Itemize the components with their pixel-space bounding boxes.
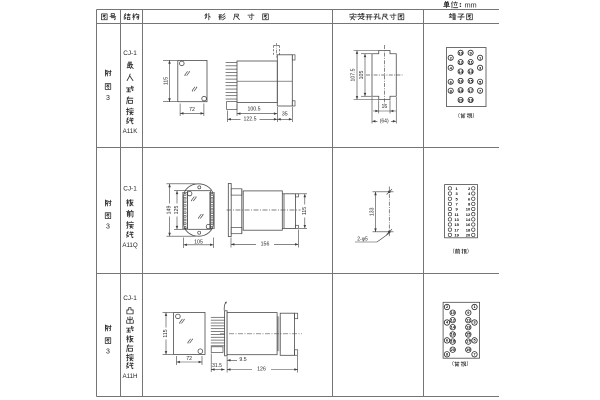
svg-text:16: 16 — [458, 79, 463, 84]
svg-text:14: 14 — [458, 69, 463, 74]
svg-text:156: 156 — [261, 241, 270, 247]
svg-text:18: 18 — [451, 340, 455, 344]
svg-text:(64): (64) — [380, 118, 389, 124]
svg-text:20: 20 — [451, 348, 455, 352]
svg-text:7: 7 — [473, 352, 475, 356]
svg-text:CJ-1: CJ-1 — [123, 295, 137, 302]
svg-text:(: ( — [453, 249, 455, 255]
svg-text:115: 115 — [163, 329, 169, 337]
svg-text:10: 10 — [458, 50, 463, 55]
svg-text:1: 1 — [473, 305, 475, 309]
svg-text:105: 105 — [359, 71, 365, 80]
svg-text:19: 19 — [454, 232, 459, 237]
svg-text:149: 149 — [167, 206, 173, 215]
svg-text:8: 8 — [446, 352, 448, 356]
svg-text:20: 20 — [458, 98, 463, 103]
svg-text:18: 18 — [458, 88, 463, 93]
svg-text:19: 19 — [466, 348, 470, 352]
svg-text:6: 6 — [446, 339, 448, 343]
svg-text:3: 3 — [106, 95, 110, 102]
svg-text:122.5: 122.5 — [244, 116, 257, 122]
svg-text:15: 15 — [466, 333, 470, 337]
svg-text:16: 16 — [382, 104, 388, 110]
svg-text:mm: mm — [465, 1, 477, 10]
svg-text:9: 9 — [467, 311, 469, 315]
svg-text:): ) — [467, 249, 469, 255]
svg-text:4: 4 — [446, 321, 449, 325]
svg-text:3: 3 — [106, 224, 110, 231]
svg-text:72: 72 — [186, 356, 192, 362]
svg-text:A11H: A11H — [122, 373, 137, 380]
svg-text:): ) — [473, 113, 475, 119]
svg-text:17: 17 — [468, 88, 473, 93]
svg-text:19: 19 — [468, 98, 473, 103]
svg-text:13: 13 — [468, 69, 473, 74]
svg-text:11: 11 — [466, 318, 470, 322]
svg-text:72: 72 — [189, 107, 195, 113]
svg-text:A11K: A11K — [123, 128, 139, 135]
svg-text:A11Q: A11Q — [122, 242, 138, 249]
svg-text:100.5: 100.5 — [248, 107, 261, 113]
svg-text:16: 16 — [451, 333, 455, 337]
svg-text:13: 13 — [466, 325, 470, 329]
svg-text:12: 12 — [458, 60, 463, 65]
svg-text:(: ( — [458, 113, 460, 119]
svg-text:115: 115 — [163, 77, 169, 85]
svg-text:3: 3 — [473, 321, 475, 325]
svg-text:12: 12 — [451, 318, 455, 322]
svg-text:10: 10 — [451, 311, 455, 315]
svg-text:126: 126 — [257, 366, 266, 372]
svg-text:CJ-1: CJ-1 — [123, 50, 137, 57]
svg-text:2: 2 — [446, 305, 448, 309]
svg-text:3: 3 — [106, 349, 110, 356]
svg-text:17: 17 — [466, 340, 470, 344]
svg-text:2-φ5: 2-φ5 — [357, 236, 368, 242]
svg-text:35: 35 — [282, 111, 288, 117]
svg-text:125: 125 — [174, 206, 180, 215]
svg-text:115: 115 — [302, 207, 308, 215]
svg-text:105: 105 — [194, 239, 203, 245]
svg-text:(: ( — [452, 361, 454, 367]
svg-text:133: 133 — [369, 207, 375, 216]
svg-text:107.5: 107.5 — [351, 68, 357, 81]
svg-text:9.5: 9.5 — [239, 357, 246, 363]
svg-text:31.5: 31.5 — [212, 363, 222, 369]
svg-text:CJ-1: CJ-1 — [123, 186, 137, 193]
svg-text:5: 5 — [473, 339, 475, 343]
svg-text:20: 20 — [466, 232, 471, 237]
svg-text:): ) — [467, 361, 469, 367]
svg-text:15: 15 — [468, 79, 473, 84]
